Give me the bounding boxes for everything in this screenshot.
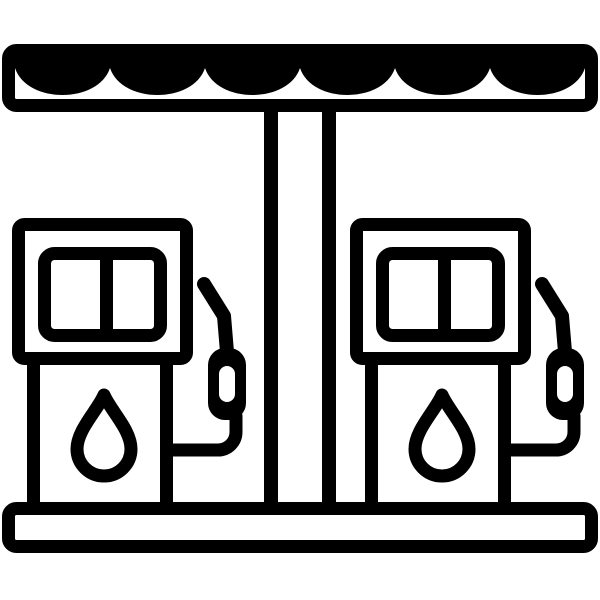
support-pillar-right-bar [322, 108, 336, 506]
canopy [9, 50, 592, 106]
support-pillar-left-bar [264, 108, 278, 506]
gas-station-icon [0, 0, 600, 600]
gas-station-illustration [0, 0, 600, 600]
base-platform [9, 509, 592, 547]
